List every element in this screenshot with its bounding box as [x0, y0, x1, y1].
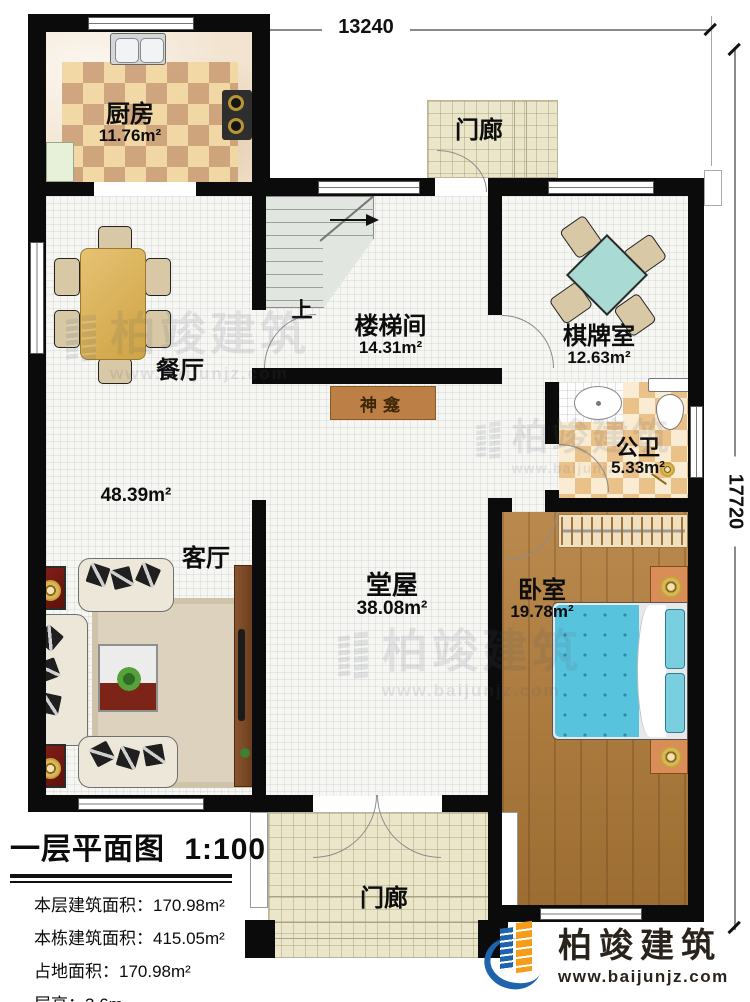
title-block: 一层平面图 1:100 本层建筑面积：170.98m² 本栋建筑面积：415.0…: [10, 824, 266, 1002]
room-name: 门廊: [330, 886, 438, 911]
porch-step-line: [268, 938, 500, 939]
bed-quilt: [555, 605, 639, 737]
logo-building-orange: [516, 920, 532, 972]
bed-pillow: [665, 609, 685, 669]
wall: [252, 795, 313, 812]
info-row: 占地面积：170.98m²: [34, 957, 266, 982]
window: [318, 181, 420, 194]
room-name: 餐厅: [138, 358, 222, 383]
stove: [222, 90, 252, 140]
window: [78, 798, 204, 810]
wall: [252, 368, 502, 384]
plant: [115, 665, 143, 693]
room-area: 38.08m²: [328, 599, 456, 619]
shrine-label: 神龛: [360, 391, 406, 416]
burner: [228, 118, 244, 134]
room-name: 楼梯间: [328, 314, 453, 339]
dining-chair: [98, 358, 132, 384]
info-label: 占地面积：: [34, 962, 119, 981]
room-area: 14.31m²: [328, 339, 453, 357]
plant: [240, 748, 250, 758]
room-name: 公卫: [588, 436, 688, 459]
refrigerator: [46, 142, 74, 182]
info-value: 170.98m²: [119, 962, 191, 981]
sink-basin: [115, 38, 139, 63]
info-row: 层高：3.6m: [34, 990, 266, 1002]
info-row: 本层建筑面积：170.98m²: [34, 891, 266, 916]
room-area: 19.78m²: [494, 603, 590, 621]
wall: [252, 500, 266, 795]
stair-arrowhead-icon: [366, 214, 379, 226]
plan-title: 一层平面图 1:100: [10, 824, 266, 868]
info-value: 170.98m²: [153, 896, 225, 915]
room-name: 门廊: [424, 118, 534, 143]
nightstand: [650, 566, 688, 604]
dimension-right-value: 17720: [724, 457, 747, 547]
sofa-pillow: [142, 743, 165, 766]
info-label: 本层建筑面积：: [34, 896, 153, 915]
room-label-porch-bottom: 门廊: [330, 886, 438, 911]
room-label-bedroom: 卧室 19.78m²: [494, 578, 590, 621]
bed: [552, 602, 688, 740]
dimension-top-value: 13240: [322, 16, 410, 39]
burner: [228, 95, 244, 111]
coffee-table: [98, 644, 158, 712]
dining-chair: [54, 310, 80, 348]
porch-side-rail: [500, 812, 518, 908]
toilet-tank: [648, 378, 692, 392]
room-label-dining: 餐厅: [138, 358, 222, 383]
wall: [28, 182, 94, 196]
wardrobe-hangers: [561, 517, 685, 545]
wardrobe: [558, 514, 688, 548]
room-area: 11.76m²: [70, 127, 190, 145]
dining-chair: [54, 258, 80, 296]
logo-swoosh: [478, 930, 549, 996]
room-name: 客厅: [164, 546, 248, 571]
window: [548, 181, 654, 194]
info-label: 本栋建筑面积：: [34, 929, 153, 948]
wall: [252, 14, 270, 196]
brand-logo-icon: [486, 920, 546, 986]
tv-cabinet: [234, 565, 254, 787]
wall: [557, 498, 704, 512]
wall: [688, 178, 704, 922]
room-name: 厨房: [70, 102, 190, 127]
dining-chair: [145, 258, 171, 296]
plan-scale: 1:100: [184, 833, 266, 866]
room-label-stairwell: 楼梯间 14.31m²: [328, 314, 453, 357]
info-row: 本栋建筑面积：415.05m²: [34, 924, 266, 949]
brand-name: 柏竣建筑: [558, 918, 729, 967]
tv: [238, 629, 245, 721]
plan-title-text: 一层平面图: [10, 833, 165, 866]
extension-line: [711, 16, 712, 166]
window: [690, 406, 703, 478]
up-text: 上: [284, 300, 320, 322]
drain: [596, 401, 601, 406]
dining-table: [80, 248, 146, 360]
dining-chair: [145, 310, 171, 348]
wall: [252, 196, 266, 310]
stair-treads: [263, 197, 323, 309]
logo-building-blue: [500, 927, 513, 971]
wall: [442, 795, 502, 812]
brand-logo: 柏竣建筑 www.baijunjz.com: [486, 918, 729, 987]
room-label-chess: 棋牌室 12.63m²: [538, 324, 660, 367]
stair-direction-arrow: [330, 219, 368, 221]
nightstand: [650, 736, 688, 774]
room-label-bath: 公卫 5.33m²: [588, 436, 688, 477]
title-underline-thick: [10, 874, 232, 878]
bathroom-sink: [574, 386, 622, 420]
room-name: 棋牌室: [538, 324, 660, 349]
wall: [488, 196, 502, 315]
shrine: 神龛: [330, 386, 436, 420]
porch-step-line: [268, 922, 500, 923]
room-label-living: 客厅: [164, 546, 248, 571]
title-underline-thin: [10, 881, 232, 883]
wall: [545, 382, 559, 444]
room-area: 5.33m²: [588, 459, 688, 477]
brand-url: www.baijunjz.com: [558, 967, 729, 987]
wall: [488, 498, 502, 922]
room-area: 48.39m²: [86, 486, 186, 506]
sink-basin: [140, 38, 164, 63]
stairs-up-label: 上: [284, 300, 320, 322]
room-label-hall: 堂屋 38.08m²: [328, 572, 456, 619]
wall: [28, 14, 46, 812]
room-area: 12.63m²: [538, 349, 660, 367]
window: [30, 242, 44, 354]
bed-pillow: [665, 673, 685, 733]
window: [88, 17, 194, 30]
wall: [425, 178, 435, 196]
floor-plan-canvas: 神龛 厨房 11.76m² 门廊 楼梯间 14.31m²: [0, 0, 750, 1002]
room-name: 堂屋: [328, 572, 456, 599]
info-value: 415.05m²: [153, 929, 225, 948]
wall: [502, 498, 512, 512]
exterior-step: [704, 170, 722, 206]
bed-blanket: [637, 605, 666, 737]
room-label-porch-top: 门廊: [424, 118, 534, 143]
room-label-kitchen: 厨房 11.76m²: [70, 102, 190, 145]
info-value: 3.6m: [85, 995, 123, 1002]
living-area-label: 48.39m²: [86, 486, 186, 506]
table-lamp: [660, 746, 682, 768]
kitchen-sink: [110, 33, 166, 65]
room-name: 卧室: [494, 578, 590, 603]
table-lamp: [660, 576, 682, 598]
info-label: 层高：: [34, 995, 85, 1002]
